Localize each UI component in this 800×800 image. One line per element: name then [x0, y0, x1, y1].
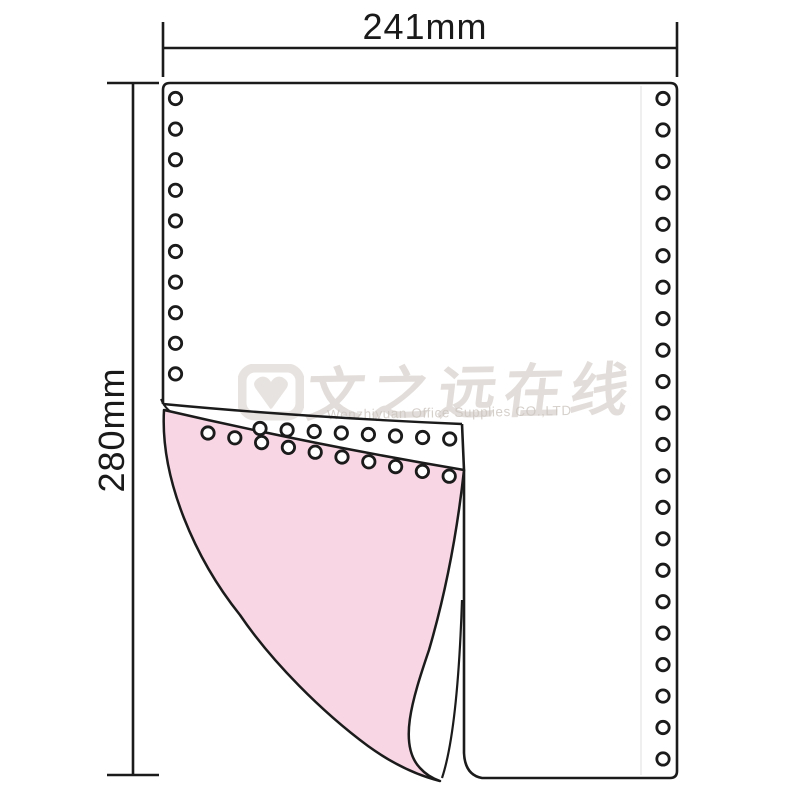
sprocket-hole [444, 433, 456, 445]
sprocket-hole [169, 276, 181, 288]
sprocket-hole [169, 368, 181, 380]
sprocket-hole [229, 432, 241, 444]
sprocket-hole [657, 690, 669, 702]
sprocket-hole [657, 501, 669, 513]
sprocket-hole [443, 470, 455, 482]
sprocket-hole [416, 465, 428, 477]
sprocket-hole [657, 533, 669, 545]
sprocket-hole [657, 470, 669, 482]
product-image-continuous-form-paper: 文之远在线 Wenzhiyuan Office Supplies CO.,LTD [0, 0, 800, 800]
sprocket-hole [169, 307, 181, 319]
sprocket-hole [169, 154, 181, 166]
sprocket-hole [169, 215, 181, 227]
sprocket-hole [169, 184, 181, 196]
sprocket-hole [657, 721, 669, 733]
sprocket-hole [169, 245, 181, 257]
sprocket-hole [657, 658, 669, 670]
sprocket-hole [657, 92, 669, 104]
sprocket-hole [657, 596, 669, 608]
sprocket-hole [254, 422, 266, 434]
sprocket-hole [308, 425, 320, 437]
sprocket-hole [657, 281, 669, 293]
sprocket-hole [282, 441, 294, 453]
sprocket-hole [202, 427, 214, 439]
sprocket-hole [657, 187, 669, 199]
sprocket-hole [657, 312, 669, 324]
sprocket-hole [657, 218, 669, 230]
sprocket-hole [169, 123, 181, 135]
sprocket-hole [255, 436, 267, 448]
sprocket-hole [389, 430, 401, 442]
sprocket-hole [362, 428, 374, 440]
sprocket-hole [335, 427, 347, 439]
sprocket-hole [363, 456, 375, 468]
sprocket-hole [169, 92, 181, 104]
sprocket-hole [657, 375, 669, 387]
sprocket-hole [657, 438, 669, 450]
height-dimension-label: 280mm [91, 290, 133, 570]
sprocket-hole [336, 451, 348, 463]
sprocket-hole [657, 124, 669, 136]
sprocket-hole [657, 407, 669, 419]
sprocket-hole [657, 627, 669, 639]
sprocket-hole [657, 155, 669, 167]
sprocket-hole [657, 344, 669, 356]
sprocket-hole [309, 446, 321, 458]
sprocket-hole [657, 564, 669, 576]
sprocket-hole [281, 424, 293, 436]
width-dimension-label: 241mm [325, 6, 525, 48]
sprocket-hole [169, 337, 181, 349]
sprocket-hole [657, 250, 669, 262]
sprocket-hole [389, 460, 401, 472]
under-sheet-curl-line [442, 600, 462, 778]
sprocket-hole [657, 753, 669, 765]
sprocket-hole [416, 431, 428, 443]
